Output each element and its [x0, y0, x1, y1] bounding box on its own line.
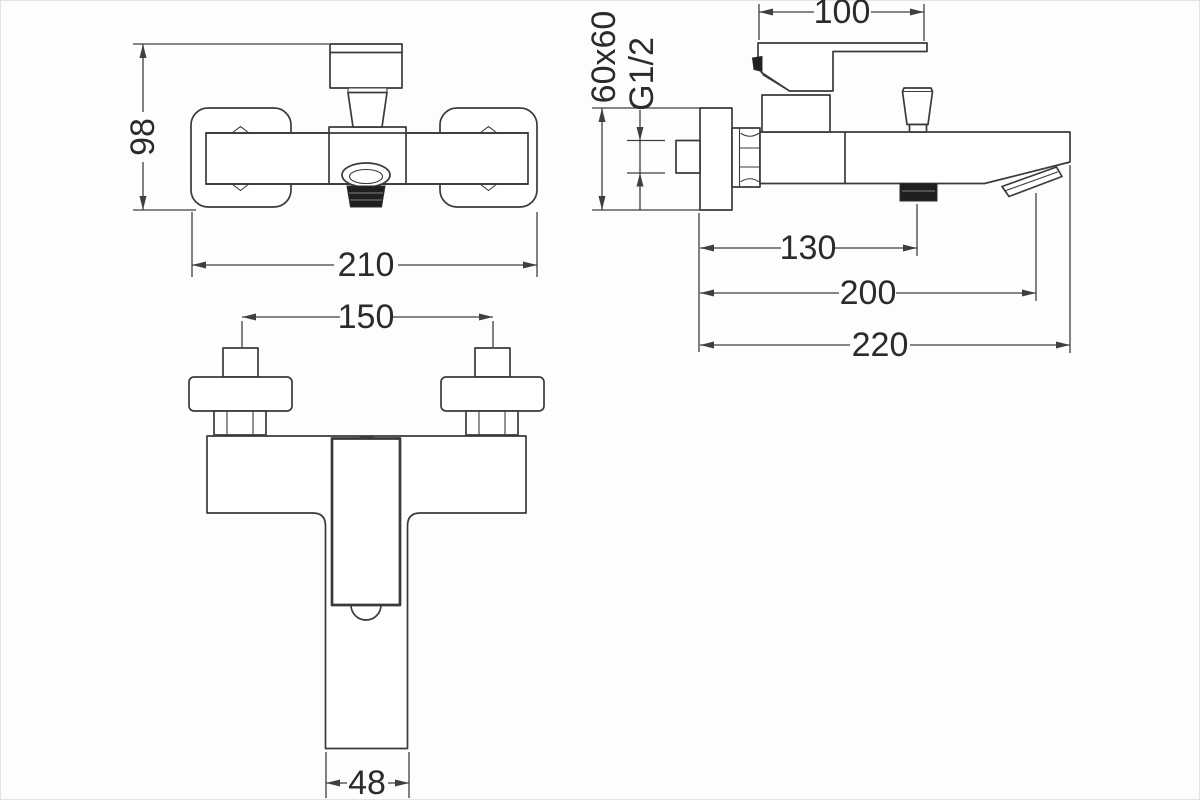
inlet-flange: [441, 377, 544, 411]
dim-label-wall-to-shower-outlet: 130: [780, 229, 837, 267]
handle-cone: [348, 93, 387, 128]
dim-label-thread-size: G1/2: [623, 37, 661, 111]
dim-label-inlet-centers: 150: [338, 298, 395, 336]
supply-pipe-stub: [676, 141, 700, 174]
mixer-body-top: [332, 439, 400, 606]
dim-label-wall-to-spout-outlet: 200: [840, 274, 897, 312]
inlet-nipple: [475, 348, 510, 377]
dim-label-total-depth: 220: [852, 326, 909, 364]
hex-nut-body: [732, 128, 760, 187]
cartridge-block: [762, 95, 830, 132]
dim-label-spout-width: 48: [348, 764, 386, 800]
handle-tip-dark: [753, 57, 763, 72]
technical-drawing: 98 210: [0, 0, 1200, 800]
shower-outlet-dark: [900, 184, 937, 202]
dim-label-front-height: 98: [124, 118, 162, 156]
diverter-knob-stem: [910, 125, 927, 133]
dim-label-front-width: 210: [338, 246, 395, 284]
inlet-flange: [189, 377, 292, 411]
outlet-thread-dark: [347, 186, 385, 207]
dim-label-wall-plate-size: 60x60: [585, 11, 623, 104]
dim-label-handle-length: 100: [814, 0, 871, 31]
diverter-knob: [903, 88, 933, 125]
inlet-nipple: [223, 348, 258, 377]
hex-nut-side: [732, 128, 760, 187]
hex-nut-top: [466, 411, 518, 435]
wall-plate-side: [700, 108, 732, 210]
drawing-canvas: 98 210: [0, 0, 1200, 800]
hex-nut-top: [214, 411, 266, 435]
handle-grip: [330, 44, 402, 88]
